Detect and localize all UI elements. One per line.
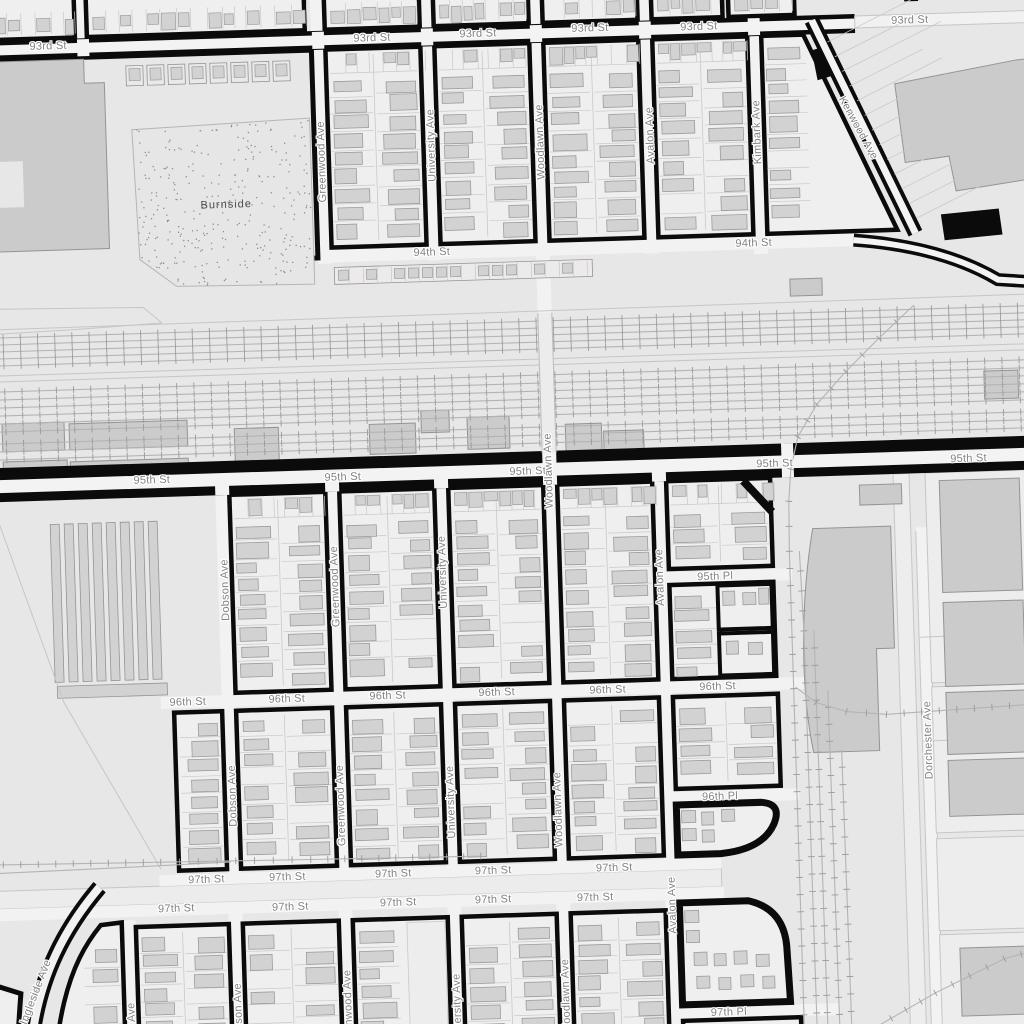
street-label-ingleside-ave-54: Ingleside Ave [18,958,54,1024]
street-label-93rd-st-2: 93rd St [459,27,497,40]
street-label-dobson-ave-50: Dobson Ave [226,765,240,827]
street-label-greenwood-ave-35: Greenwood Ave [341,970,356,1024]
street-label-university-ave-38: University Ave [444,765,458,838]
street-label-woodlawn-ave-43: Woodlawn Ave [559,959,573,1024]
street-label-96th-st-18: 96th St [589,684,626,697]
street-label-97th-pl-31: 97th Pl [711,1006,747,1019]
street-label-dobson-ave-51: Dobson Ave [232,983,246,1024]
place-label-burnside: Burnside [200,198,252,212]
street-label-ave-55: Ave [125,1002,138,1022]
street-label-93rd-st-3: 93rd St [571,22,609,35]
street-label-university-ave-39: University Ave [450,973,464,1024]
street-label-95th-st-8: 95th St [133,474,170,487]
street-label-95th-pl-13: 95th Pl [697,570,733,583]
street-label-greenwood-ave-33: Greenwood Ave [328,546,343,628]
street-label-96th-st-16: 96th St [369,689,406,702]
street-label-96th-st-19: 96th St [699,680,736,693]
street-label-woodlawn-ave-41: Woodlawn Ave [542,433,556,509]
map-label-layer: 93rd St93rd St93rd St93rd St93rd St93rd … [0,0,1024,1024]
street-label-93rd-st-0: 93rd St [29,40,67,53]
street-label-97th-st-21: 97th St [188,873,225,886]
street-label-woodlawn-ave-40: Woodlawn Ave [533,104,547,180]
street-label-95th-st-10: 95th St [509,465,546,478]
street-label-97th-st-22: 97th St [269,871,306,884]
street-label-97th-st-29: 97th St [475,893,512,906]
street-label-university-ave-37: University Ave [436,536,450,609]
street-label-university-ave-36: University Ave [424,109,438,182]
street-label-97th-st-23: 97th St [375,867,412,880]
street-label-avalon-ave-44: Avalon Ave [643,107,657,164]
street-label-dorchester-ave-53: Dorchester Ave [921,701,935,780]
street-label-woodlawn-ave-42: Woodlawn Ave [551,772,565,848]
street-label-93rd-st-4: 93rd St [680,20,718,33]
street-label-97th-st-30: 97th St [577,891,614,904]
street-label-96th-st-17: 96th St [478,686,515,699]
street-label-kenwood-ave-52: Kenwood Ave [836,94,880,161]
street-label-95th-st-9: 95th St [324,471,361,484]
street-label-96th-pl-20: 96th Pl [702,790,738,803]
street-label-97th-st-27: 97th St [272,901,309,914]
street-label-96th-st-14: 96th St [169,696,206,709]
street-label-95th-st-11: 95th St [756,457,793,470]
street-label-97th-st-28: 97th St [380,896,417,909]
street-label-94th-st-7: 94th St [735,237,772,250]
street-label-97th-st-25: 97th St [596,861,633,874]
map-canvas[interactable]: 93rd St93rd St93rd St93rd St93rd St93rd … [0,0,1024,1024]
street-label-96th-st-15: 96th St [268,693,305,706]
street-label-avalon-ave-46: Avalon Ave [666,876,680,933]
street-label-greenwood-ave-32: Greenwood Ave [315,121,330,203]
street-label-94th-st-6: 94th St [413,246,450,259]
street-label-97th-st-24: 97th St [475,864,512,877]
street-label-93rd-st-5: 93rd St [891,14,929,27]
street-label-95th-st-12: 95th St [950,452,987,465]
street-label-greenwood-ave-34: Greenwood Ave [334,765,349,847]
street-label-97th-st-26: 97th St [158,902,195,915]
street-label-dobson-ave-49: Dobson Ave [218,559,232,621]
street-label-avalon-ave-45: Avalon Ave [653,549,667,606]
map-rotated-layer: 93rd St93rd St93rd St93rd St93rd St93rd … [0,0,1024,1024]
street-label-93rd-st-1: 93rd St [353,32,391,45]
street-label-kimbark-ave-47: Kimbark Ave [750,100,764,165]
